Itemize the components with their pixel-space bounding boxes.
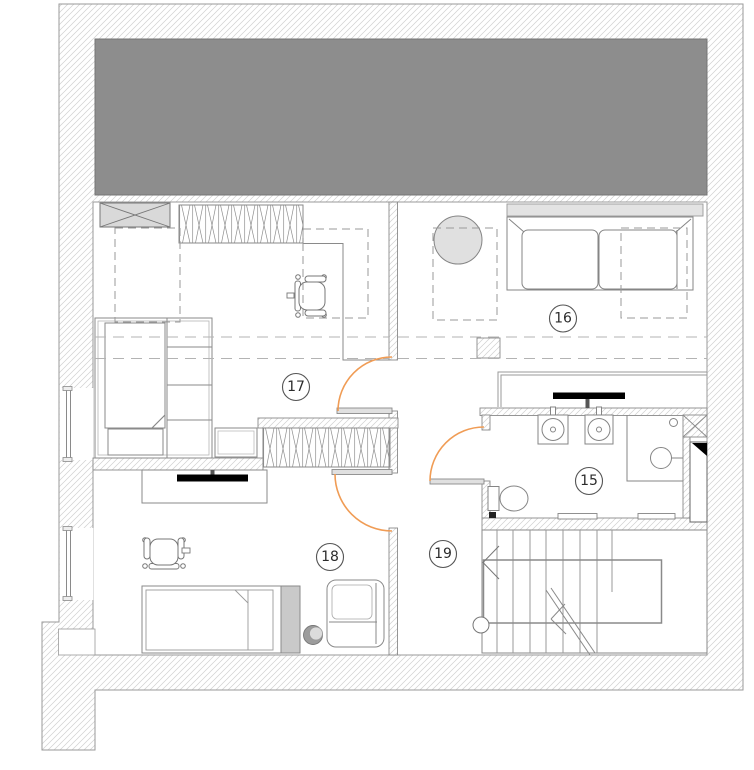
svg-text:17: 17 bbox=[287, 379, 305, 395]
door-swing-arc bbox=[335, 474, 392, 531]
side-table-16 bbox=[434, 216, 482, 264]
column bbox=[477, 338, 500, 358]
toilet bbox=[488, 486, 528, 511]
armchair-18 bbox=[327, 580, 384, 647]
door-swing-arc bbox=[430, 427, 484, 481]
nightstand-17 bbox=[215, 428, 257, 457]
newel-post bbox=[473, 617, 489, 633]
svg-text:15: 15 bbox=[580, 473, 598, 489]
door-15 bbox=[430, 427, 484, 484]
desk-chair-18 bbox=[143, 538, 190, 569]
desk-lamp-icon bbox=[287, 293, 294, 298]
door-18 bbox=[332, 470, 392, 532]
chimney-niche bbox=[59, 629, 96, 655]
shelf-behind-sofa bbox=[507, 204, 703, 216]
floor-plan: 15 16 17 18 19 bbox=[0, 0, 754, 770]
room-label-15: 15 bbox=[576, 468, 603, 495]
room-label-19: 19 bbox=[430, 541, 457, 568]
desk-18 bbox=[142, 470, 267, 503]
shower bbox=[627, 415, 683, 481]
side-table-18 bbox=[304, 626, 323, 645]
wardrobe-top bbox=[179, 205, 303, 243]
bed-17 bbox=[95, 318, 212, 458]
radiator-shaft bbox=[690, 442, 707, 522]
window-left-lower bbox=[60, 527, 93, 601]
room-label-18: 18 bbox=[317, 544, 344, 571]
svg-text:19: 19 bbox=[434, 546, 452, 562]
desk-chair-17 bbox=[287, 275, 326, 318]
room-label-17: 17 bbox=[283, 374, 310, 401]
window-left-upper bbox=[60, 387, 93, 462]
duct-shaft bbox=[683, 415, 707, 437]
roof-void bbox=[95, 39, 707, 195]
svg-text:18: 18 bbox=[321, 549, 339, 565]
monitor-18 bbox=[177, 475, 248, 482]
svg-text:16: 16 bbox=[554, 311, 572, 327]
staircase bbox=[473, 530, 707, 655]
floor-drain bbox=[489, 512, 496, 518]
door-17 bbox=[337, 357, 392, 414]
room-label-16: 16 bbox=[550, 305, 577, 332]
bed-18 bbox=[142, 586, 300, 653]
floor-plan-drawing: 15 16 17 18 19 bbox=[0, 0, 754, 770]
skylight-box bbox=[100, 203, 170, 227]
tv-16 bbox=[553, 393, 625, 409]
wardrobe-mid bbox=[263, 428, 390, 467]
door-swing-arc bbox=[338, 357, 392, 411]
knee-wall-16 bbox=[498, 372, 707, 407]
